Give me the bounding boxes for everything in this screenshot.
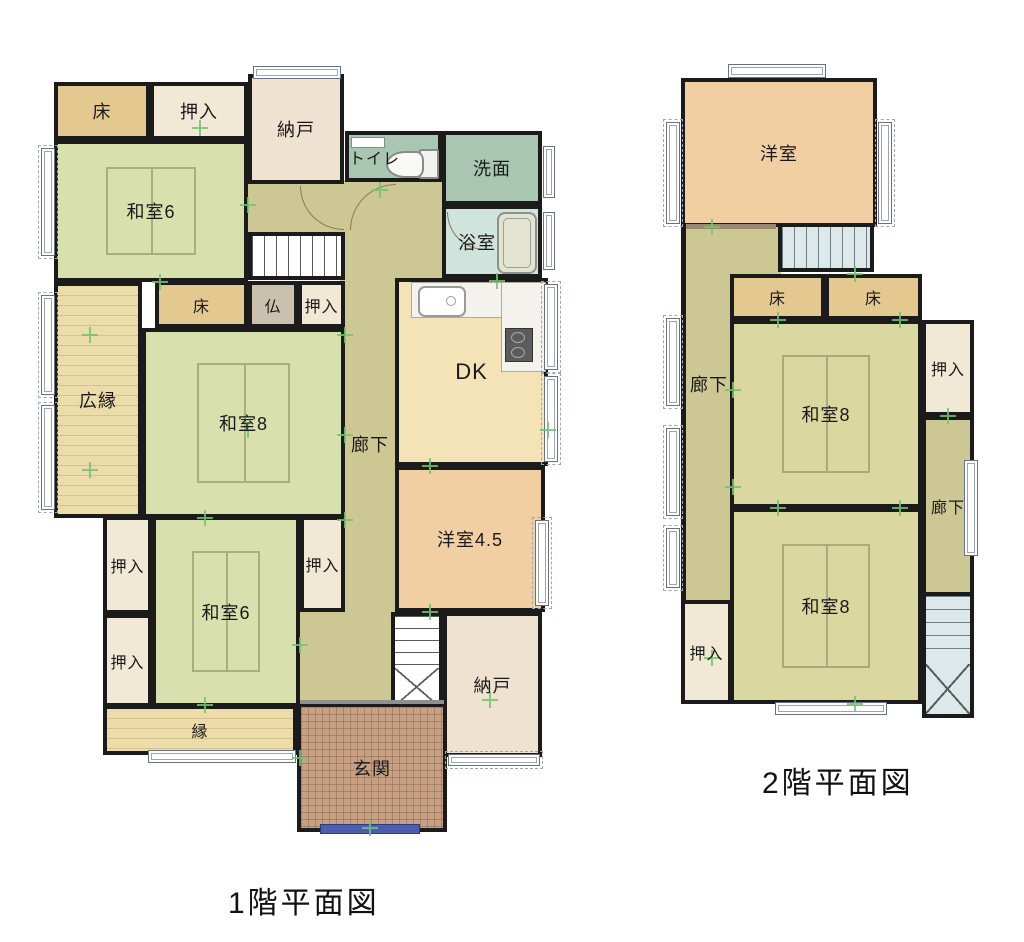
corridor-area xyxy=(297,610,345,708)
room-label: 床 xyxy=(865,285,882,309)
room-oshiire-right-1f: 押入 xyxy=(300,516,345,612)
window xyxy=(41,295,55,395)
room-label: 納戸 xyxy=(277,116,315,142)
room-hiroen: 広縁 xyxy=(54,282,142,518)
stairs-1f-down xyxy=(391,612,443,710)
room-label: 納戸 xyxy=(474,672,512,698)
sliding-door xyxy=(686,224,776,229)
room-oshiire-left-lower: 押入 xyxy=(103,614,152,707)
room-toko-mid: 床 xyxy=(155,281,248,328)
room-yoshitsu45: 洋室4.5 xyxy=(395,466,545,612)
room-label: 仏 xyxy=(264,293,281,317)
room-label: トイレ xyxy=(349,145,400,169)
room-label: 和室6 xyxy=(201,599,250,625)
room-label: 和室6 xyxy=(126,198,175,224)
entry-door xyxy=(320,824,420,834)
room-washitsu8-upper-2f: 和室8 xyxy=(730,320,922,508)
room-label: 押入 xyxy=(110,649,144,673)
floor-plan-canvas: 廊下 床 押入 納戸 和室6 トイレ 洗面 浴室 xyxy=(0,0,1024,942)
room-oshiire-left-upper: 押入 xyxy=(103,516,152,614)
room-label: 縁 xyxy=(191,718,208,742)
floor1-title: 1階平面図 xyxy=(228,878,380,922)
room-senmen: 洗面 xyxy=(442,131,542,205)
room-genkan: 玄関 xyxy=(297,703,447,832)
window xyxy=(535,520,549,606)
stair-treads xyxy=(926,596,970,661)
stair-winders xyxy=(926,664,970,714)
room-label: 広縁 xyxy=(79,387,117,413)
bathtub-icon xyxy=(497,212,537,274)
room-label: 床 xyxy=(769,285,786,309)
window xyxy=(253,66,341,79)
room-label: 洋室4.5 xyxy=(437,526,503,552)
room-oshiire-right-2f: 押入 xyxy=(922,320,974,416)
window xyxy=(41,405,55,510)
floor2-title: 2階平面図 xyxy=(762,758,914,802)
stair-treads xyxy=(395,616,439,668)
window xyxy=(666,528,680,588)
room-washitsu8-1f: 和室8 xyxy=(142,328,345,518)
room-oshiire-top: 押入 xyxy=(150,82,248,140)
room-washitsu6-top: 和室6 xyxy=(54,140,248,282)
window xyxy=(878,122,892,224)
room-label: 和室8 xyxy=(801,593,850,619)
room-label: 床 xyxy=(193,293,210,317)
window xyxy=(964,460,978,556)
window xyxy=(666,318,680,406)
kitchen-sink-icon xyxy=(418,286,466,317)
window xyxy=(775,702,887,715)
room-label: 浴室 xyxy=(458,229,496,255)
room-yoshitsu-2f: 洋室 xyxy=(681,78,877,227)
room-rouka-left-2f: 廊下 xyxy=(681,223,732,605)
stairs-2f-up xyxy=(778,223,874,272)
room-label: 和室8 xyxy=(801,401,850,427)
room-label: 押入 xyxy=(304,293,338,317)
room-label: 押入 xyxy=(689,640,723,664)
window xyxy=(543,146,555,198)
room-label: 廊下 xyxy=(351,431,389,457)
room-label: 廊下 xyxy=(690,371,728,397)
room-nando-bottom: 納戸 xyxy=(443,612,542,757)
room-label: 押入 xyxy=(180,98,218,124)
room-en: 縁 xyxy=(103,705,297,755)
stairs-2f-down xyxy=(922,592,974,718)
window xyxy=(666,428,680,516)
room-label: 押入 xyxy=(305,552,339,576)
window xyxy=(148,750,296,763)
window xyxy=(544,376,558,462)
window xyxy=(41,148,55,256)
room-toko-right-2f: 床 xyxy=(825,274,922,320)
window xyxy=(666,122,680,224)
window xyxy=(728,64,826,78)
sliding-door xyxy=(300,700,444,704)
room-label: 洗面 xyxy=(473,155,511,181)
room-label: 玄関 xyxy=(353,755,391,781)
room-oshiire-mid: 押入 xyxy=(298,281,345,328)
room-toko-top: 床 xyxy=(54,82,150,140)
room-label: 床 xyxy=(93,98,112,124)
room-oshiire-bottom-2f: 押入 xyxy=(681,600,732,704)
window xyxy=(543,212,555,270)
window xyxy=(448,754,540,766)
room-label: DK xyxy=(455,359,488,385)
room-washitsu8-lower-2f: 和室8 xyxy=(730,508,922,704)
room-label: 洋室 xyxy=(760,140,798,166)
room-label: 和室8 xyxy=(219,410,268,436)
room-toko-left-2f: 床 xyxy=(730,274,825,320)
room-butsudan: 仏 xyxy=(248,281,298,328)
room-label: 廊下 xyxy=(931,494,965,518)
room-nando-top: 納戸 xyxy=(248,74,344,184)
kitchen-stove-icon xyxy=(505,328,533,362)
room-label: 押入 xyxy=(110,553,144,577)
room-washitsu6-bottom: 和室6 xyxy=(152,516,300,707)
stairs-1f-up xyxy=(248,232,345,280)
window xyxy=(544,284,558,370)
room-label: 押入 xyxy=(931,356,965,380)
